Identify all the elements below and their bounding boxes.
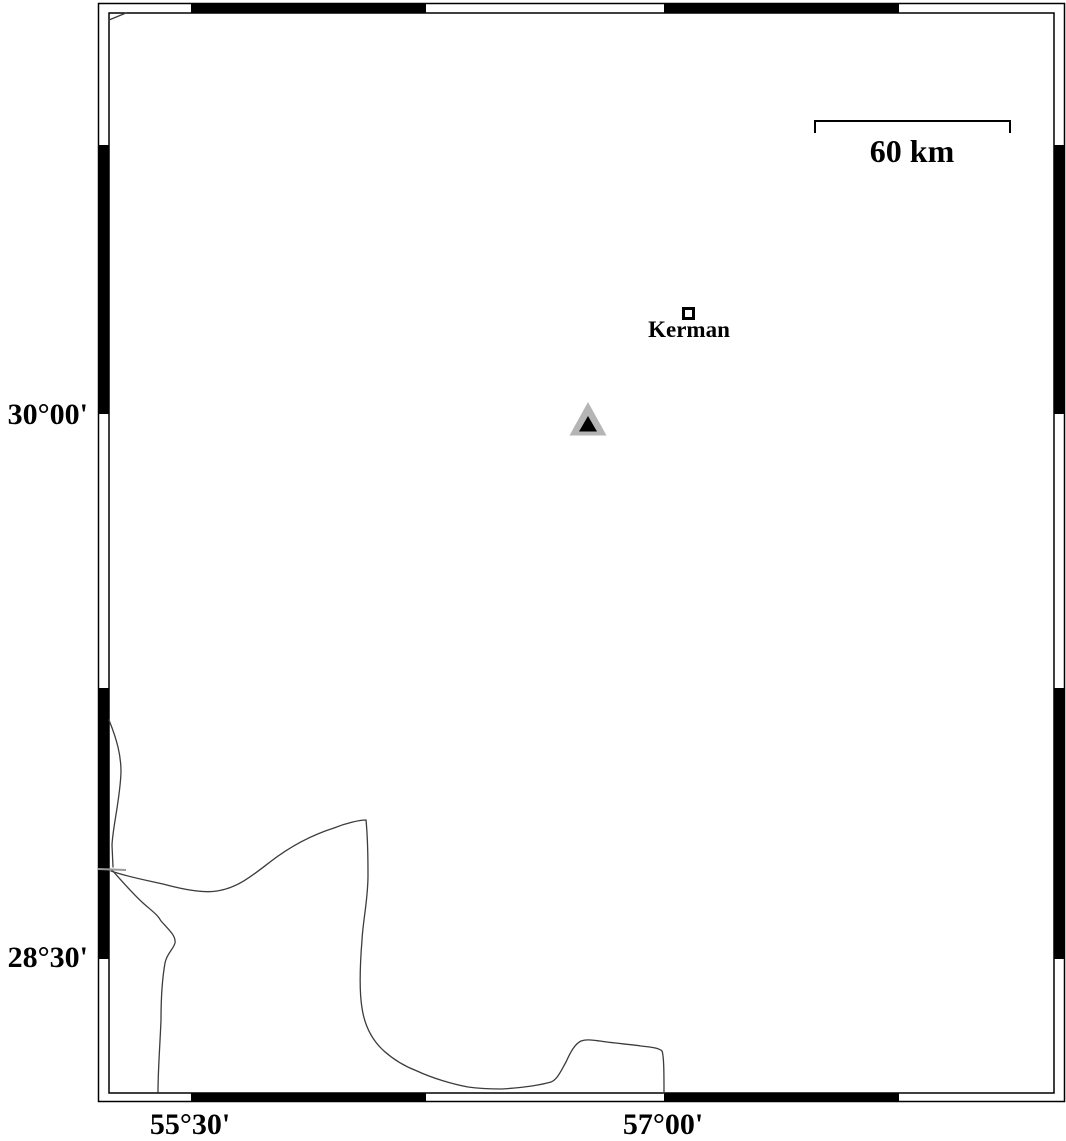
map-canvas xyxy=(0,0,1066,1141)
frame-band-top-2 xyxy=(664,4,899,14)
frame-band-left-2 xyxy=(99,688,110,959)
frame-band-top-1 xyxy=(191,4,426,14)
lon-label-55-30: 55°30' xyxy=(110,1107,270,1141)
city-label-kerman: Kerman xyxy=(589,317,789,342)
boundary-line-south-branch xyxy=(111,869,175,1092)
frame-band-left-1 xyxy=(99,145,110,414)
frame-inner-outline xyxy=(109,13,1054,1093)
triangle-marker-icon xyxy=(570,402,607,436)
frame-band-right-2 xyxy=(1054,688,1065,959)
map-page: 30°00' 28°30' 55°30' 57°00' 60 km Kerman xyxy=(0,0,1066,1141)
lat-label-28-30: 28°30' xyxy=(0,940,88,976)
boundary-line-corner-fragment xyxy=(109,13,126,20)
frame-band-right-1 xyxy=(1054,145,1065,414)
lat-label-30-00: 30°00' xyxy=(0,397,88,433)
frame-band-bottom-1 xyxy=(191,1093,426,1102)
boundary-line-gray-stub xyxy=(98,869,126,870)
scale-bar-bracket xyxy=(815,121,1010,133)
scale-bar-label: 60 km xyxy=(812,134,1012,168)
boundary-line-main-coast xyxy=(111,820,664,1093)
lon-label-57-00: 57°00' xyxy=(583,1107,743,1141)
boundary-line-upper-loop xyxy=(109,720,121,867)
frame-band-bottom-2 xyxy=(664,1093,899,1102)
